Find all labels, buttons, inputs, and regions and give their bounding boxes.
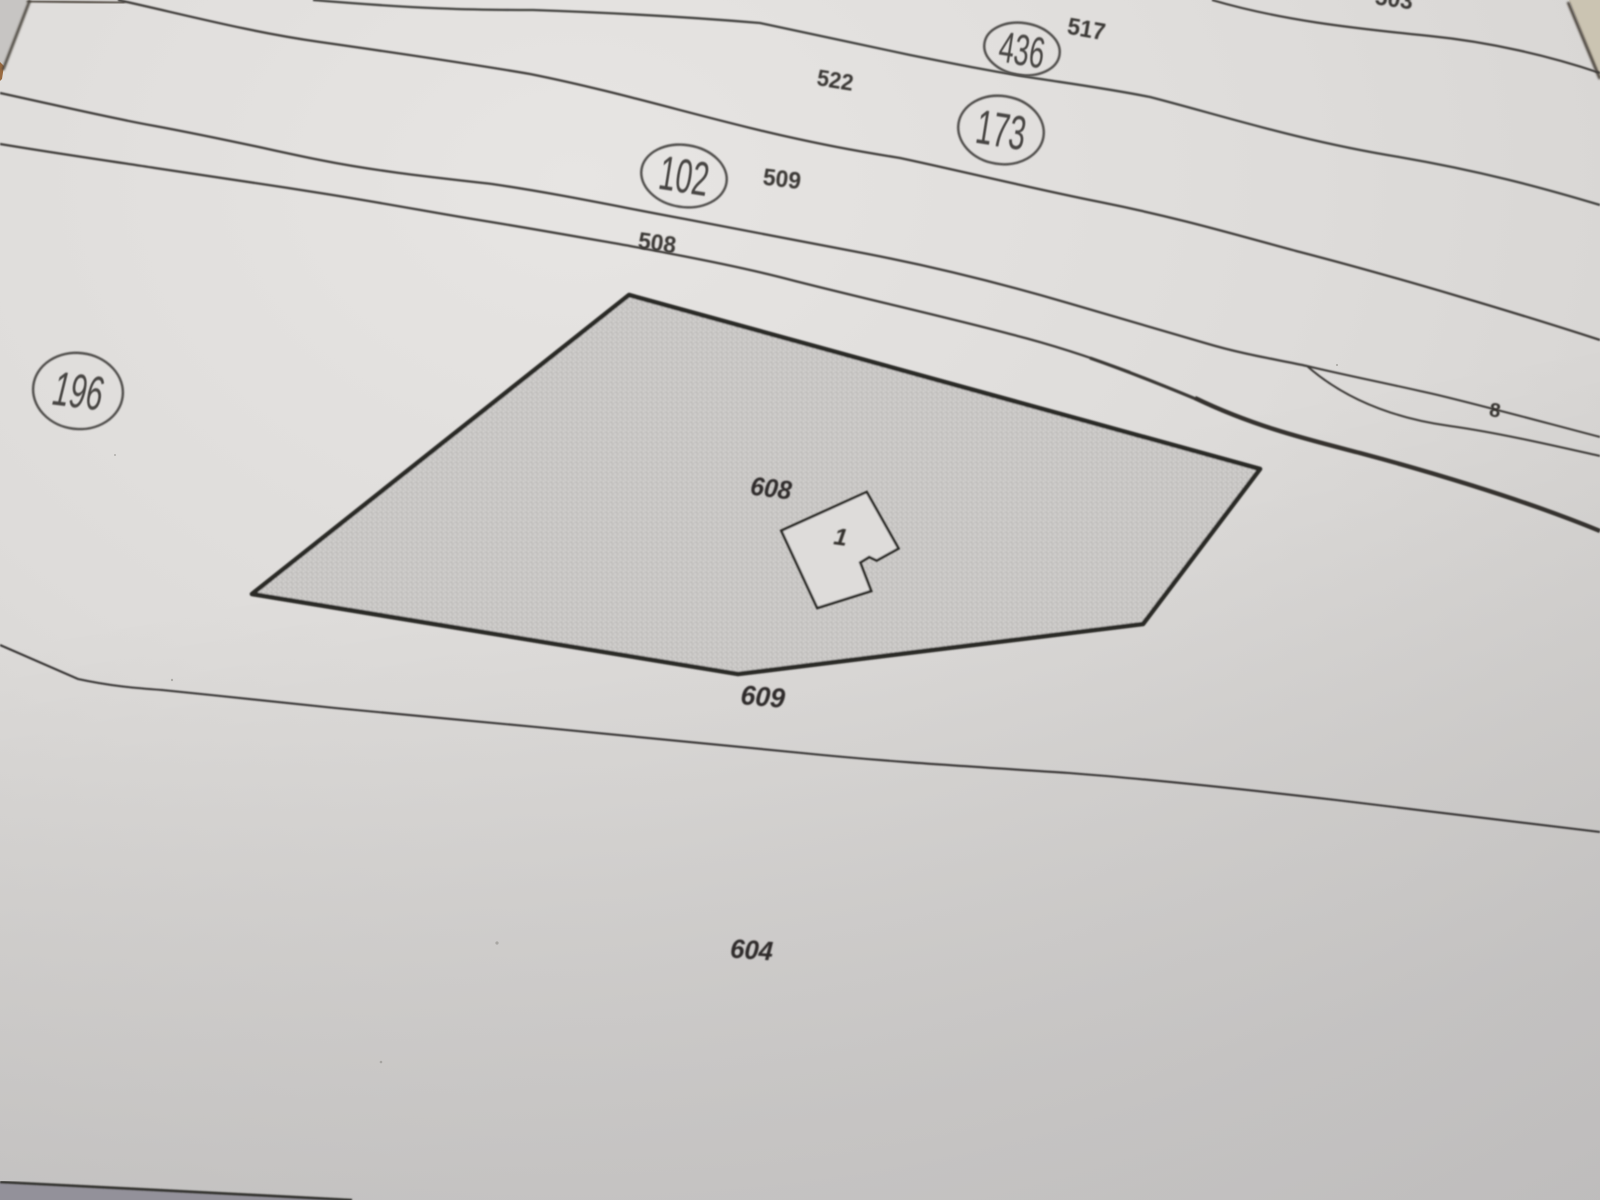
svg-text:436: 436 — [996, 22, 1049, 78]
svg-text:608: 608 — [749, 472, 794, 506]
svg-text:509: 509 — [762, 163, 803, 194]
svg-text:508: 508 — [636, 227, 677, 259]
svg-text:609: 609 — [739, 679, 787, 715]
svg-text:102: 102 — [655, 147, 712, 207]
svg-text:173: 173 — [972, 101, 1029, 161]
svg-text:196: 196 — [50, 363, 106, 422]
svg-text:604: 604 — [729, 933, 774, 967]
